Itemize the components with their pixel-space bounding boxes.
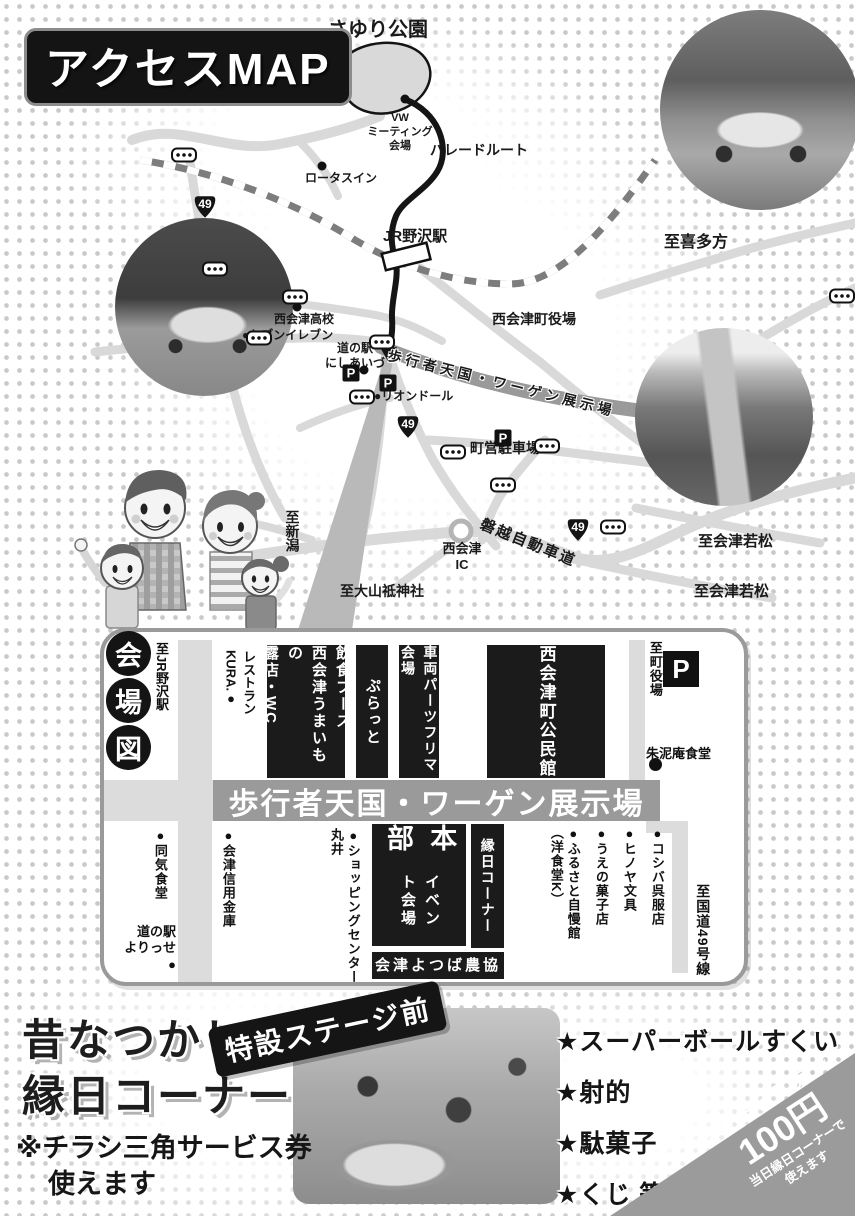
map-label-jr-nozawa-station: JR野沢駅 — [383, 228, 447, 247]
traffic-signal-icon — [349, 390, 375, 405]
traffic-signal-icon — [246, 331, 272, 346]
traffic-signal-icon — [369, 335, 395, 350]
route-49-shield-icon: 49 — [564, 516, 592, 544]
parking-icon: P — [343, 365, 360, 382]
sparkle-icon: ≋ — [698, 1130, 718, 1151]
map-label-vw-meeting-site: VW ミーティング 会場 — [362, 112, 438, 153]
page-title-text: アクセスMAP — [45, 45, 331, 94]
poi-dot — [401, 95, 410, 104]
traffic-signal-icon — [202, 262, 228, 277]
map-label-to-niigata: 至新潟 — [283, 510, 301, 552]
traffic-signal-icon — [490, 478, 516, 493]
map-label-pedestrian-zone-road: 歩行者天国・ワーゲン展示場 — [386, 347, 617, 421]
parking-icon: P — [380, 375, 397, 392]
map-label-nishiaizu-ic: 西会津 IC — [436, 541, 488, 574]
map-label-nishiaizu-high-school: 西会津高校 — [274, 312, 334, 327]
route-49-shield-icon: 49 — [394, 413, 422, 441]
map-label-to-oyamazumi-shrine: 至大山祗神社 — [340, 583, 424, 601]
traffic-signal-icon — [600, 520, 626, 535]
map-label-to-aizu-wakamatsu-north: 至会津若松 — [698, 533, 773, 552]
traffic-signal-icon — [829, 289, 855, 304]
traffic-signal-icon — [534, 439, 560, 454]
ennichi-title-line2: 縁日コーナー — [22, 1070, 292, 1126]
traffic-signal-icon — [171, 148, 197, 163]
service-ticket-note: ※チラシ三角サービス券 使えます — [16, 1130, 312, 1203]
map-label-lotus-inn: ロータスイン — [305, 171, 377, 186]
map-label-parade-route: パレードルート — [430, 142, 528, 160]
traffic-signal-icon — [440, 445, 466, 460]
map-label-to-aizu-wakamatsu-south: 至会津若松 — [694, 583, 769, 602]
note-line2: 使えます — [48, 1166, 312, 1202]
note-line1: ※チラシ三角サービス券 — [16, 1130, 312, 1166]
route-49-shield-icon: 49 — [191, 193, 219, 221]
poi-dot — [293, 303, 302, 312]
page-title: アクセスMAP — [24, 28, 352, 106]
flyer-page: 歩行者天国・ワーゲン展示場 会場図 飲食ブース 西会津うまいもの 露店・WCぷら… — [0, 0, 855, 1216]
map-label-to-kitakata: 至喜多方 — [664, 233, 728, 253]
poi-dot — [360, 366, 369, 375]
map-label-nishiaizu-town-office: 西会津町役場 — [492, 311, 576, 329]
sparkle-icon: ≋ — [813, 1055, 833, 1076]
poi-dot — [318, 162, 327, 171]
parking-icon: P — [495, 430, 512, 447]
